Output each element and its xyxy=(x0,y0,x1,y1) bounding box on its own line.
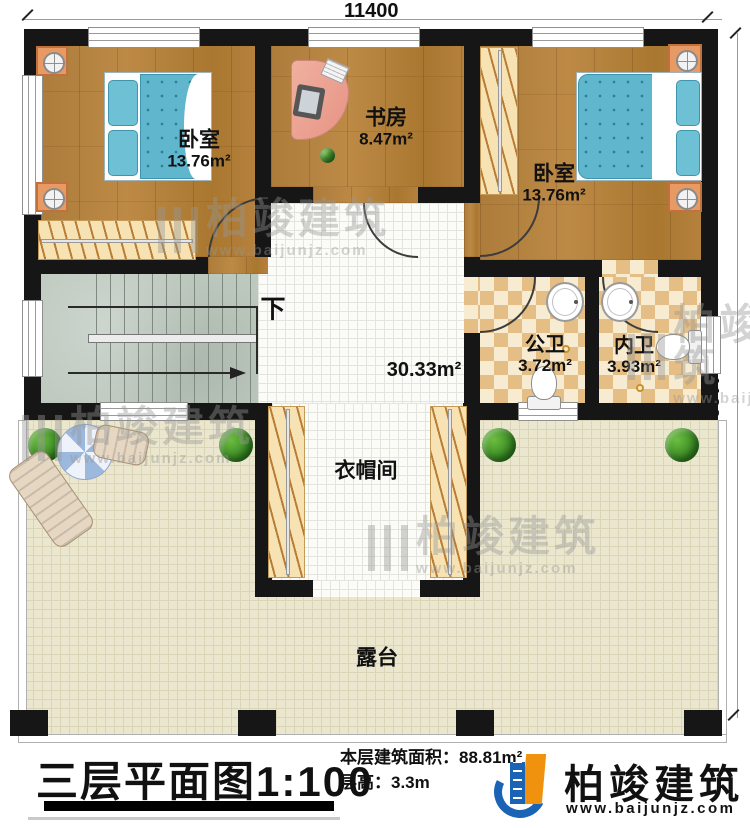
wall xyxy=(188,403,258,420)
nightstand xyxy=(36,182,68,212)
wall xyxy=(24,403,100,420)
bedroom-left-label: 卧室13.76m² xyxy=(167,129,230,170)
stair-down-label: 下 xyxy=(260,297,285,324)
cloakroom-rack xyxy=(430,406,467,578)
wall xyxy=(420,580,480,597)
stair-direction-line xyxy=(68,306,258,308)
window xyxy=(100,402,188,421)
pillow xyxy=(676,130,700,176)
pillow xyxy=(676,80,700,126)
window xyxy=(88,27,200,48)
hall-area-label: 30.33m² xyxy=(387,360,462,382)
logo-building-blue-icon xyxy=(510,762,525,804)
wall xyxy=(578,403,718,420)
computer-screen-icon xyxy=(298,90,320,115)
cloakroom-rack xyxy=(268,406,305,578)
terrace-railing xyxy=(718,420,727,742)
cloakroom-label: 衣帽间 xyxy=(335,461,398,484)
pillow xyxy=(108,80,138,126)
bed-mattress xyxy=(578,74,656,179)
pillow xyxy=(108,130,138,176)
stair-direction-arrow-icon xyxy=(230,367,246,379)
stair-direction-line xyxy=(68,372,230,374)
wardrobe-rack xyxy=(38,220,196,260)
sink xyxy=(546,282,584,322)
window xyxy=(532,27,644,48)
toilet xyxy=(656,334,690,360)
right-dimension-line xyxy=(737,33,738,718)
door-gap-floor xyxy=(464,277,480,333)
bedroom-right-label: 卧室13.76m² xyxy=(522,163,585,204)
column xyxy=(456,710,494,736)
window xyxy=(308,27,420,48)
sink xyxy=(601,282,639,322)
window xyxy=(22,300,43,377)
wardrobe-rack xyxy=(480,47,518,195)
column xyxy=(684,710,722,736)
desk-plant-icon xyxy=(320,148,335,163)
wall xyxy=(464,46,480,197)
terrace-railing xyxy=(18,734,727,743)
potted-plant-icon xyxy=(219,428,253,462)
door-gap-floor xyxy=(208,257,268,274)
potted-plant-icon xyxy=(665,428,699,462)
wall xyxy=(255,580,313,597)
toilet xyxy=(688,330,702,364)
column xyxy=(10,710,48,736)
staircase-handrail xyxy=(88,334,258,343)
nightstand xyxy=(668,182,702,212)
plan-title: 三层平面图1:100 xyxy=(36,748,373,809)
brand-logo-icon xyxy=(494,750,558,824)
study-label: 书房8.47m² xyxy=(359,107,413,148)
nightstand xyxy=(36,46,68,76)
door-gap-floor xyxy=(464,197,480,257)
door-gap-floor xyxy=(602,260,658,277)
dimension-tick xyxy=(729,27,741,39)
ensuite-bath-label: 内卫3.93m² xyxy=(607,336,661,376)
potted-plant-icon xyxy=(482,428,516,462)
title-underline xyxy=(44,801,334,811)
floor-plan: 11400 11600 下 xyxy=(0,0,750,828)
bed-sheet-fold xyxy=(652,74,678,179)
dimension-tick xyxy=(701,11,713,23)
terrace-label: 露台 xyxy=(356,648,398,671)
column xyxy=(238,710,276,736)
floor-drain-icon xyxy=(636,384,644,392)
stair-direction-line xyxy=(256,306,258,374)
public-bath-label: 公卫3.72m² xyxy=(518,335,572,375)
wall xyxy=(585,277,599,403)
top-dimension-line xyxy=(22,19,722,20)
door-gap-floor xyxy=(313,187,418,203)
window xyxy=(700,316,721,374)
cloakroom-opening-floor xyxy=(312,580,420,597)
wall xyxy=(464,260,602,277)
brand-website: www.baijunjz.com xyxy=(566,800,735,817)
wall xyxy=(418,187,480,203)
nightstand xyxy=(668,44,702,74)
title-underline-thin xyxy=(28,817,340,820)
wall xyxy=(658,260,718,277)
